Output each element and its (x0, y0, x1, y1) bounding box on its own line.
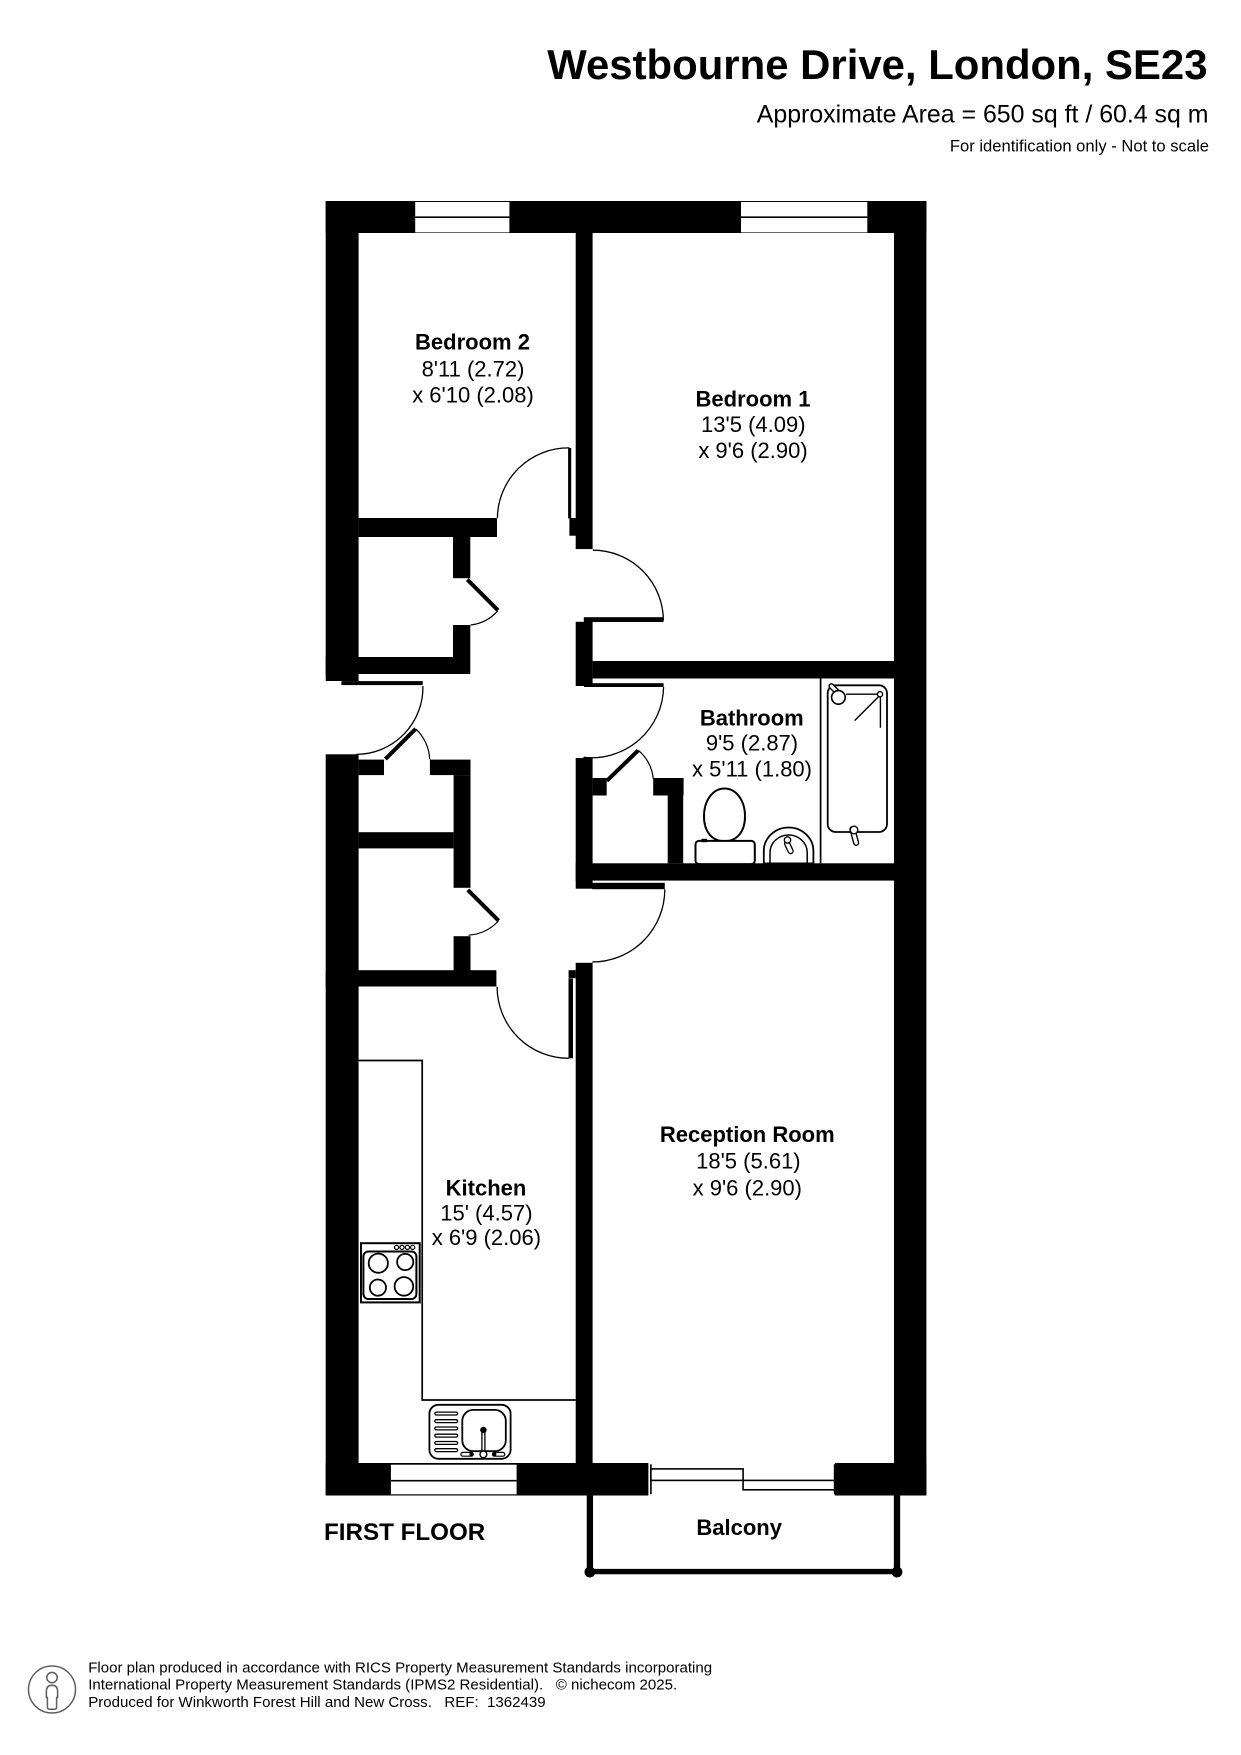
svg-text:8'11 (2.72): 8'11 (2.72) (422, 357, 525, 382)
svg-text:x 5'11 (1.80): x 5'11 (1.80) (692, 757, 812, 782)
svg-text:x 9'6 (2.90): x 9'6 (2.90) (698, 438, 807, 463)
svg-text:x 6'10 (2.08): x 6'10 (2.08) (412, 383, 534, 408)
svg-text:FIRST FLOOR: FIRST FLOOR (324, 1519, 485, 1546)
svg-text:13'5 (4.09): 13'5 (4.09) (701, 412, 806, 437)
svg-text:Reception Room: Reception Room (660, 1122, 835, 1147)
svg-text:x 9'6 (2.90): x 9'6 (2.90) (693, 1176, 802, 1201)
svg-text:9'5 (2.87): 9'5 (2.87) (706, 731, 798, 756)
svg-text:For identification only - Not: For identification only - Not to scale (950, 137, 1209, 156)
svg-text:18'5 (5.61): 18'5 (5.61) (696, 1148, 801, 1173)
svg-text:x 6'9 (2.06): x 6'9 (2.06) (432, 1225, 541, 1250)
svg-text:International Property Measure: International Property Measurement Stand… (88, 1677, 677, 1694)
svg-text:Floor plan produced in accorda: Floor plan produced in accordance with R… (88, 1659, 712, 1676)
svg-text:Bedroom 1: Bedroom 1 (696, 386, 811, 411)
svg-text:Bedroom 2: Bedroom 2 (415, 329, 530, 354)
svg-text:15' (4.57): 15' (4.57) (440, 1200, 532, 1225)
svg-text:Kitchen: Kitchen (446, 1176, 527, 1201)
svg-text:Westbourne Drive, London, SE23: Westbourne Drive, London, SE23 (547, 41, 1207, 88)
svg-text:Produced for Winkworth Forest: Produced for Winkworth Forest Hill and N… (88, 1694, 545, 1711)
svg-text:Approximate Area = 650 sq ft /: Approximate Area = 650 sq ft / 60.4 sq m (757, 101, 1209, 129)
svg-text:Bathroom: Bathroom (700, 706, 804, 731)
svg-text:Balcony: Balcony (696, 1515, 782, 1540)
